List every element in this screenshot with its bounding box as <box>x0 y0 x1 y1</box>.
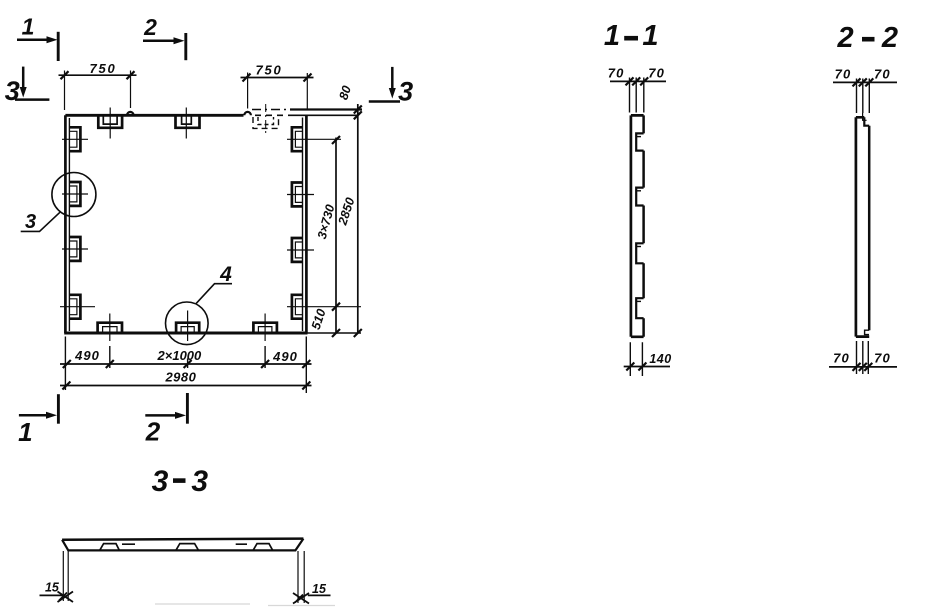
svg-text:70: 70 <box>833 351 850 366</box>
svg-text:490: 490 <box>272 349 298 364</box>
svg-text:750: 750 <box>89 61 116 76</box>
svg-text:2980: 2980 <box>164 370 196 385</box>
svg-text:70: 70 <box>835 66 852 81</box>
svg-text:3: 3 <box>25 211 36 233</box>
svg-text:140: 140 <box>649 352 671 366</box>
svg-text:3: 3 <box>5 76 20 106</box>
svg-text:70: 70 <box>874 351 891 366</box>
svg-text:3: 3 <box>398 76 413 106</box>
svg-text:3: 3 <box>152 465 169 498</box>
svg-text:3: 3 <box>191 465 208 498</box>
svg-text:2: 2 <box>881 22 898 54</box>
svg-text:15: 15 <box>312 582 327 596</box>
svg-text:750: 750 <box>255 63 282 78</box>
svg-text:1: 1 <box>642 20 658 52</box>
svg-text:4: 4 <box>219 263 232 286</box>
svg-text:2: 2 <box>145 416 161 446</box>
svg-text:2: 2 <box>837 22 854 54</box>
svg-text:2: 2 <box>143 14 157 40</box>
svg-text:70: 70 <box>608 66 625 81</box>
svg-text:1: 1 <box>22 14 35 40</box>
svg-text:490: 490 <box>74 348 100 363</box>
svg-text:70: 70 <box>648 66 665 81</box>
svg-text:1: 1 <box>604 20 620 52</box>
svg-text:70: 70 <box>874 66 891 81</box>
svg-text:1: 1 <box>18 417 32 447</box>
svg-text:2×1000: 2×1000 <box>157 348 203 363</box>
